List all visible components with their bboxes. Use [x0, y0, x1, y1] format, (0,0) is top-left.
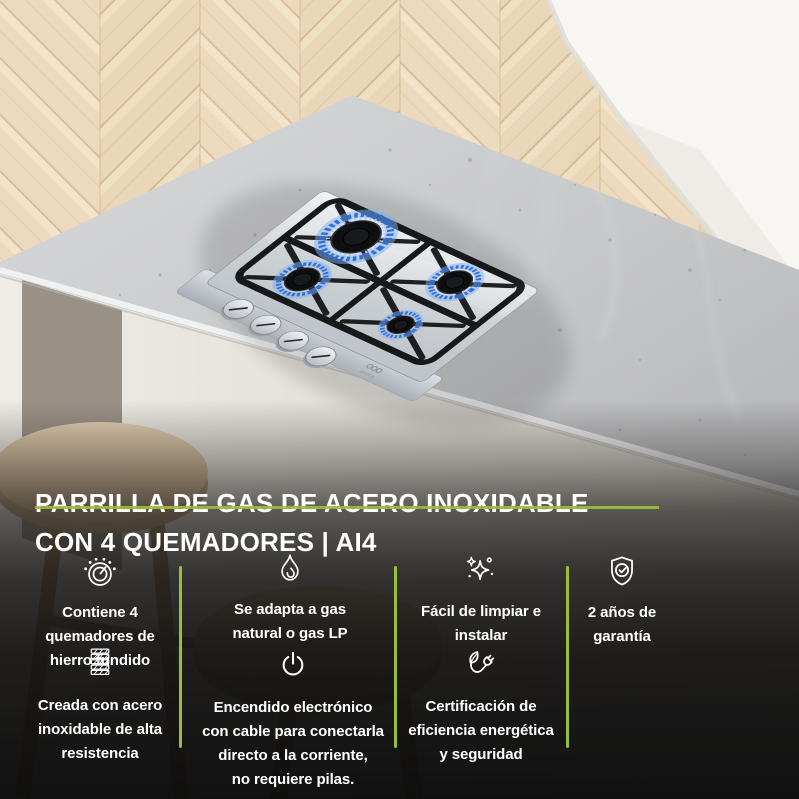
product-title-line1: PARRILLA DE GAS DE ACERO INOXIDABLE — [35, 488, 589, 519]
shield-check-icon — [601, 550, 643, 592]
feature-label: Certificación de eficiencia energética y… — [396, 695, 566, 767]
feature-stainless-steel: Creada con acero inoxidable de alta resi… — [15, 642, 185, 766]
feature-label: Creada con acero inoxidable de alta resi… — [15, 694, 185, 766]
flame-icon — [270, 549, 310, 589]
feature-label: Se adapta a gas natural o gas LP — [190, 598, 390, 646]
sparkles-icon — [460, 549, 502, 591]
feature-label: Encendido electrónico con cable para con… — [186, 696, 400, 792]
power-icon — [274, 645, 312, 683]
feature-certification: Certificación de eficiencia energética y… — [396, 642, 566, 767]
burner-icon — [79, 550, 121, 592]
feature-easy-clean: Fácil de limpiar e instalar — [400, 549, 562, 648]
product-hero: avera PARRILLA DE GAS DE ACERO INOXIDABL… — [0, 0, 799, 799]
feature-label: Fácil de limpiar e instalar — [400, 600, 562, 648]
feature-label: 2 años de garantía — [557, 601, 687, 649]
steel-sheets-icon — [80, 642, 120, 682]
feature-warranty: 2 años de garantía — [557, 550, 687, 649]
marketing-copy: PARRILLA DE GAS DE ACERO INOXIDABLE CON … — [0, 0, 799, 799]
feature-electronic-ignition: Encendido electrónico con cable para con… — [186, 645, 400, 792]
eco-plug-icon — [460, 642, 502, 684]
feature-gas-types: Se adapta a gas natural o gas LP — [190, 549, 390, 646]
title-underline — [35, 506, 659, 509]
